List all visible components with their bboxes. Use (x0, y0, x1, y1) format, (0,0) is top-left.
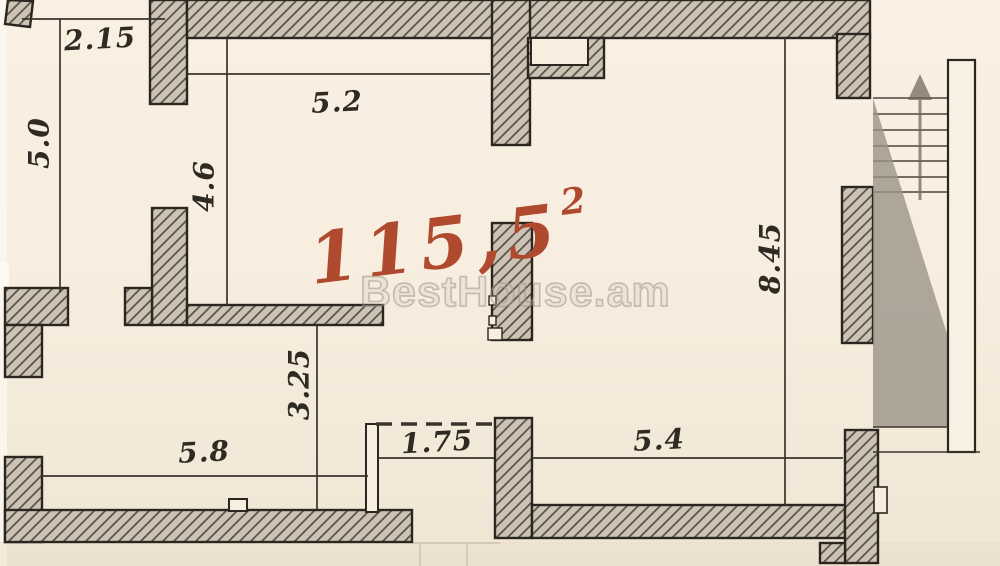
floor-plan: 2.15 5.0 5.2 4.6 3.25 5.8 1.75 5.4 8.45 … (0, 0, 1000, 566)
wall-segment (187, 305, 383, 325)
door-leaf (874, 487, 887, 513)
dimension-label-left-height: 5.0 (23, 117, 56, 169)
stair-shadow (873, 98, 948, 427)
dimension-label-bottom-right-room-width: 5.4 (632, 422, 685, 458)
window-niche (531, 38, 588, 65)
dimension-label-opening-width: 1.75 (400, 424, 474, 461)
wall-segment (5, 325, 42, 377)
wall-segment (5, 510, 412, 542)
wall-segment (837, 34, 870, 98)
watermark: BestHouse.am (360, 268, 671, 317)
dimension-label-bottom-left-room-width: 5.8 (177, 434, 230, 470)
partition-thin-wall (366, 424, 378, 512)
wall-segment (150, 0, 187, 104)
wall-segment (495, 418, 532, 538)
dimension-label-top-room-depth: 4.6 (188, 160, 221, 212)
wall-notch (488, 328, 502, 340)
threshold-detail (229, 499, 247, 511)
dimension-label-top-room-width: 5.2 (310, 84, 363, 120)
wall-segment (152, 208, 187, 325)
area-superscript: 2 (558, 179, 588, 224)
wall-segment (820, 543, 845, 563)
paper-notch (0, 262, 9, 288)
wall-segment (5, 0, 33, 27)
dimension-label-top-left-width: 2.15 (63, 21, 137, 58)
wall-segment (492, 0, 530, 145)
wall-segment (5, 288, 68, 325)
dimension-label-bottom-left-room-depth: 3.25 (283, 348, 316, 420)
staircase (873, 60, 980, 452)
stair-rail-wall (948, 60, 975, 452)
stairs-up-arrow-icon (908, 74, 932, 200)
dimension-label-right-room-height: 8.45 (754, 222, 787, 294)
wall-segment (532, 505, 845, 538)
wall-segment (842, 187, 873, 343)
wall-segment (845, 430, 878, 563)
wall-segment (125, 288, 152, 325)
wall-notch (489, 316, 496, 325)
